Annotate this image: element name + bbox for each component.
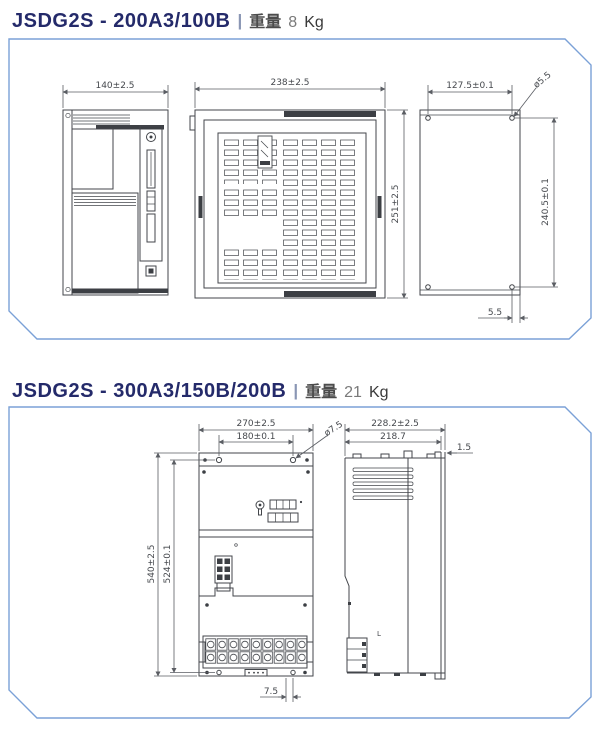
dim-label-left-inner: 524±0.1 — [163, 544, 173, 583]
dimension-drawing-300a3: 270±2.5 180±0.1 ø7.5 540±2.5 524±0.1 — [8, 406, 592, 719]
vent-grid — [223, 188, 280, 216]
dim-label-back-top: 127.5±0.1 — [446, 81, 494, 91]
dim-label-front-top: 270±2.5 — [236, 419, 275, 429]
dim-label-side-inner: 218.7 — [380, 432, 406, 442]
weight-unit: Kg — [304, 14, 324, 32]
dim-label-left-outer: 540±2.5 — [147, 544, 157, 583]
label-plate — [258, 136, 272, 168]
spec-sheet: JSDG2S - 200A3/100B | 重量 8 Kg — [0, 0, 600, 733]
weight-value: 21 — [344, 384, 362, 402]
weight-label: 重量 — [249, 8, 281, 32]
weight-label: 重量 — [305, 378, 337, 402]
dim-label-front-bottom: 7.5 — [264, 687, 278, 697]
title-separator: | — [293, 381, 298, 401]
dim-label-back-bottom: 5.5 — [488, 308, 502, 318]
dim-label-front-top: 238±2.5 — [270, 78, 309, 88]
panel-frame — [9, 407, 591, 718]
model-name: JSDG2S - 200A3/100B — [12, 10, 231, 33]
vent-grid — [282, 138, 358, 280]
weight-unit: Kg — [369, 384, 389, 402]
dim-label-side-top: 228.2±2.5 — [371, 419, 419, 429]
title-separator: | — [238, 11, 243, 31]
section2-panel: 270±2.5 180±0.1 ø7.5 540±2.5 524±0.1 — [8, 406, 592, 719]
section1-panel: 140±2.5 238±2.5 — [8, 38, 592, 340]
dim-label-front-right: 251±2.5 — [391, 184, 401, 223]
dim-label-front-inner: 180±0.1 — [236, 432, 275, 442]
section1-title: JSDG2S - 200A3/100B | 重量 8 Kg — [12, 0, 600, 38]
terminal-block — [199, 636, 313, 668]
dim-label-side-top: 140±2.5 — [95, 81, 134, 91]
marking-label: L — [377, 630, 381, 638]
model-name: JSDG2S - 300A3/150B/200B — [12, 380, 286, 403]
section2-title: JSDG2S - 300A3/150B/200B | 重量 21 Kg — [12, 378, 600, 406]
dimension-drawing-200a3: 140±2.5 238±2.5 — [8, 38, 592, 340]
dim-label-side-right: 1.5 — [457, 443, 471, 453]
weight-value: 8 — [288, 14, 297, 32]
dim-label-back-right: 240.5±0.1 — [541, 178, 551, 226]
vent-grid — [223, 248, 280, 280]
